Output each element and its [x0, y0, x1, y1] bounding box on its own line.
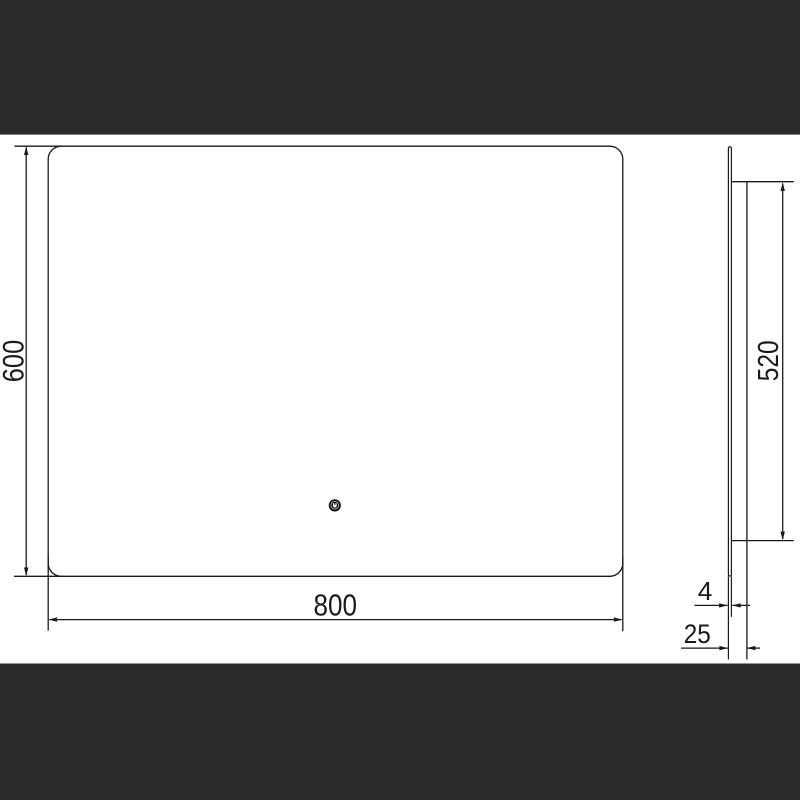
svg-text:520: 520 — [753, 340, 785, 381]
svg-text:4: 4 — [698, 576, 713, 606]
svg-text:25: 25 — [684, 619, 711, 649]
svg-text:800: 800 — [314, 589, 358, 623]
svg-text:600: 600 — [0, 340, 30, 383]
